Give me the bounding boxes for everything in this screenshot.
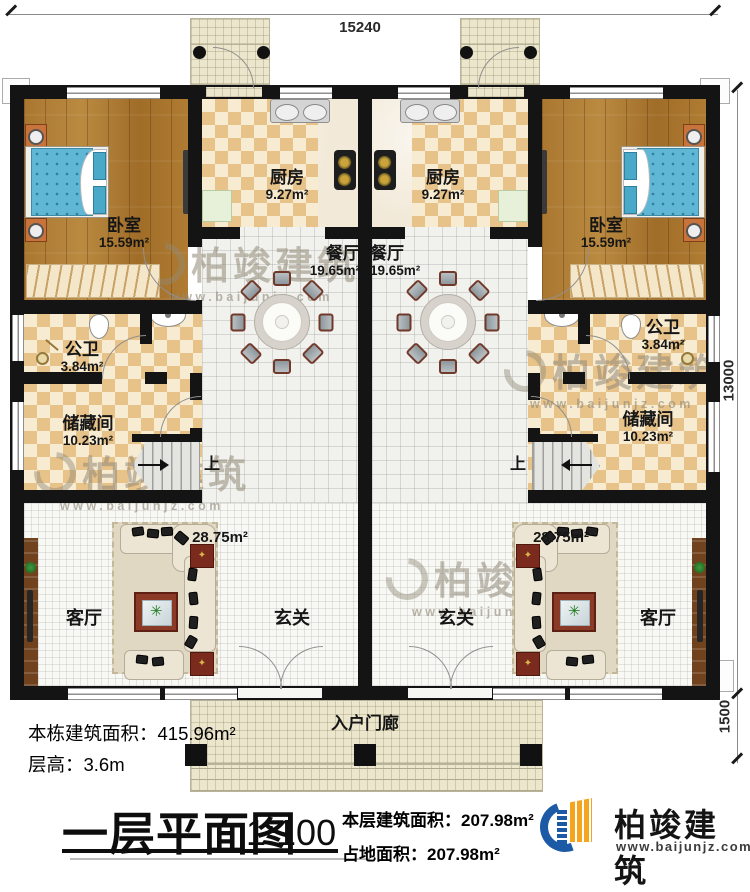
- sofa-pillow: [566, 656, 579, 666]
- tv-living: [27, 590, 33, 642]
- porch-column: [524, 46, 537, 59]
- room-label-storage-left: 储藏间10.23m²: [46, 414, 130, 448]
- title-underline: [62, 849, 338, 853]
- area-label-living-right: 28.75m²: [529, 530, 593, 547]
- sofa-pillow: [531, 592, 541, 606]
- wall-interior: [325, 227, 358, 239]
- plant-icon: ✳: [568, 602, 581, 620]
- sofa-pillow: [532, 567, 543, 581]
- sofa-pillow: [136, 654, 149, 664]
- room-label-bath-left: 公卫3.84m²: [44, 340, 120, 374]
- bed-pillow: [93, 186, 106, 214]
- dining-chair: [273, 271, 291, 286]
- side-table: ✦: [516, 652, 540, 676]
- room-label-foyer-left: 玄关: [264, 608, 320, 628]
- dining-table-center: [275, 315, 289, 329]
- stair-arrow-head: [160, 459, 169, 471]
- door-opening: [408, 688, 492, 698]
- room-label-bath-right: 公卫3.84m²: [625, 318, 701, 352]
- window: [280, 87, 332, 99]
- wall-left: [10, 85, 24, 700]
- porch-column: [193, 46, 206, 59]
- dimension-height: 13000: [721, 341, 738, 421]
- wall-interior: [528, 490, 720, 503]
- kitchen-sink: [400, 99, 460, 123]
- wall-interior: [528, 373, 540, 400]
- sofa-pillow: [187, 567, 198, 581]
- door-opening: [468, 87, 524, 97]
- wall-right: [706, 85, 720, 700]
- kitchen-counter: [202, 190, 232, 222]
- stove: [334, 150, 356, 190]
- room-label-foyer-right: 玄关: [428, 608, 484, 628]
- window: [67, 87, 160, 99]
- sofa-pillow: [161, 527, 174, 537]
- nightstand: [683, 218, 705, 242]
- bed-pillow: [93, 152, 106, 180]
- stairs-up-label: 上: [506, 456, 530, 474]
- sofa-pillow: [582, 654, 595, 664]
- porch-column: [460, 46, 473, 59]
- room-label-dining-left: 餐厅19.65m²: [294, 244, 360, 278]
- dining-chair: [439, 271, 457, 286]
- sofa-pillow: [152, 656, 165, 666]
- nightstand: [25, 218, 47, 242]
- bed-pillow: [624, 152, 637, 180]
- wall-interior: [528, 300, 720, 314]
- wall-center-party: [358, 85, 372, 700]
- area-label-living-left: 28.75m²: [188, 530, 252, 547]
- wall-interior: [145, 372, 167, 384]
- wall-interior: [188, 99, 202, 247]
- company-logo-icon: [540, 794, 610, 860]
- sofa-pillow: [131, 526, 144, 537]
- sofa-pillow: [532, 616, 542, 630]
- dining-chair: [397, 313, 412, 331]
- door-opening: [206, 87, 262, 97]
- room-label-kitchen-left: 厨房9.27m²: [247, 168, 327, 202]
- room-label-living-right: 客厅: [632, 608, 684, 628]
- wall-interior: [198, 227, 240, 239]
- stair-arrow-head: [561, 459, 570, 471]
- wall-interior: [190, 373, 202, 400]
- entry-porch-steps: [190, 764, 543, 792]
- window: [165, 688, 237, 700]
- porch-column: [257, 46, 270, 59]
- dining-chair: [319, 313, 334, 331]
- title-footprint-area: 占地面积：207.98m²: [342, 840, 500, 865]
- plant-icon: [694, 562, 705, 573]
- nightstand: [25, 124, 47, 148]
- porch-column: [520, 744, 542, 766]
- room-label-kitchen-right: 厨房9.27m²: [403, 168, 483, 202]
- sofa-pillow: [189, 616, 199, 630]
- floor-plan: 柏竣建筑 www.baijunjz.com 柏竣建筑 www.baijunjz.…: [0, 0, 750, 867]
- note-total-area: 本栋建筑面积：415.96m²: [28, 720, 236, 746]
- dining-table-center: [441, 315, 455, 329]
- wall-interior: [372, 227, 405, 239]
- room-label-dining-right: 餐厅19.65m²: [370, 244, 436, 278]
- dimension-width: 15240: [315, 19, 405, 36]
- nightstand: [683, 124, 705, 148]
- tv-living: [697, 590, 703, 642]
- side-table: ✦: [190, 652, 214, 676]
- stair-arrow: [570, 464, 592, 466]
- dimension-line-right: [737, 90, 738, 763]
- window: [708, 402, 720, 472]
- kitchen-counter: [498, 190, 528, 222]
- window: [12, 315, 24, 361]
- stove: [374, 150, 396, 190]
- wall-interior: [10, 490, 202, 503]
- wardrobe: [570, 264, 704, 298]
- dimension-line-top: [8, 14, 718, 15]
- wardrobe: [26, 264, 160, 298]
- note-floor-height: 层高：3.6m: [28, 751, 125, 777]
- coffee-table: ✳: [134, 592, 178, 632]
- side-table: ✦: [516, 544, 540, 568]
- wall-interior: [628, 372, 720, 384]
- kitchen-sink: [270, 99, 330, 123]
- dining-chair: [439, 359, 457, 374]
- stair-arrow: [138, 464, 160, 466]
- room-label-bedroom-right: 卧室15.59m²: [566, 216, 646, 250]
- wall-interior: [490, 227, 532, 239]
- sofa-pillow: [147, 528, 160, 538]
- room-label-porch: 入户门廊: [300, 714, 430, 733]
- floor-drain: [681, 352, 694, 365]
- porch-column: [185, 744, 207, 766]
- window: [68, 688, 160, 700]
- window: [570, 87, 663, 99]
- window: [493, 688, 565, 700]
- rear-porch-right-edge: [460, 44, 540, 45]
- title-underline-thin: [70, 858, 370, 860]
- rear-porch-left-edge: [190, 44, 270, 45]
- plant-icon: [25, 562, 36, 573]
- dining-chair: [485, 313, 500, 331]
- dimension-porch-depth: 1500: [717, 692, 734, 742]
- title-floor-area: 本层建筑面积：207.98m²: [342, 806, 534, 831]
- bed-pillow: [624, 186, 637, 214]
- stairs-up-label: 上: [200, 456, 224, 474]
- plant-icon: ✳: [150, 602, 163, 620]
- side-table: ✦: [190, 544, 214, 568]
- window: [12, 402, 24, 470]
- door-opening: [238, 688, 322, 698]
- wall-interior: [528, 99, 542, 247]
- window: [570, 688, 662, 700]
- porch-column: [354, 744, 376, 766]
- coffee-table: ✳: [552, 592, 596, 632]
- room-label-storage-right: 储藏间10.23m²: [606, 410, 690, 444]
- dining-chair: [231, 313, 246, 331]
- window: [398, 87, 450, 99]
- company-logo-url: www.baijunjz.com: [616, 839, 750, 854]
- wall-interior: [10, 300, 202, 314]
- dining-chair: [273, 359, 291, 374]
- room-label-living-left: 客厅: [58, 608, 110, 628]
- window: [708, 316, 720, 362]
- sofa-pillow: [188, 592, 198, 606]
- sheet-scale: 1:100: [246, 812, 336, 854]
- wall-interior: [563, 372, 585, 384]
- room-label-bedroom-left: 卧室15.59m²: [84, 216, 164, 250]
